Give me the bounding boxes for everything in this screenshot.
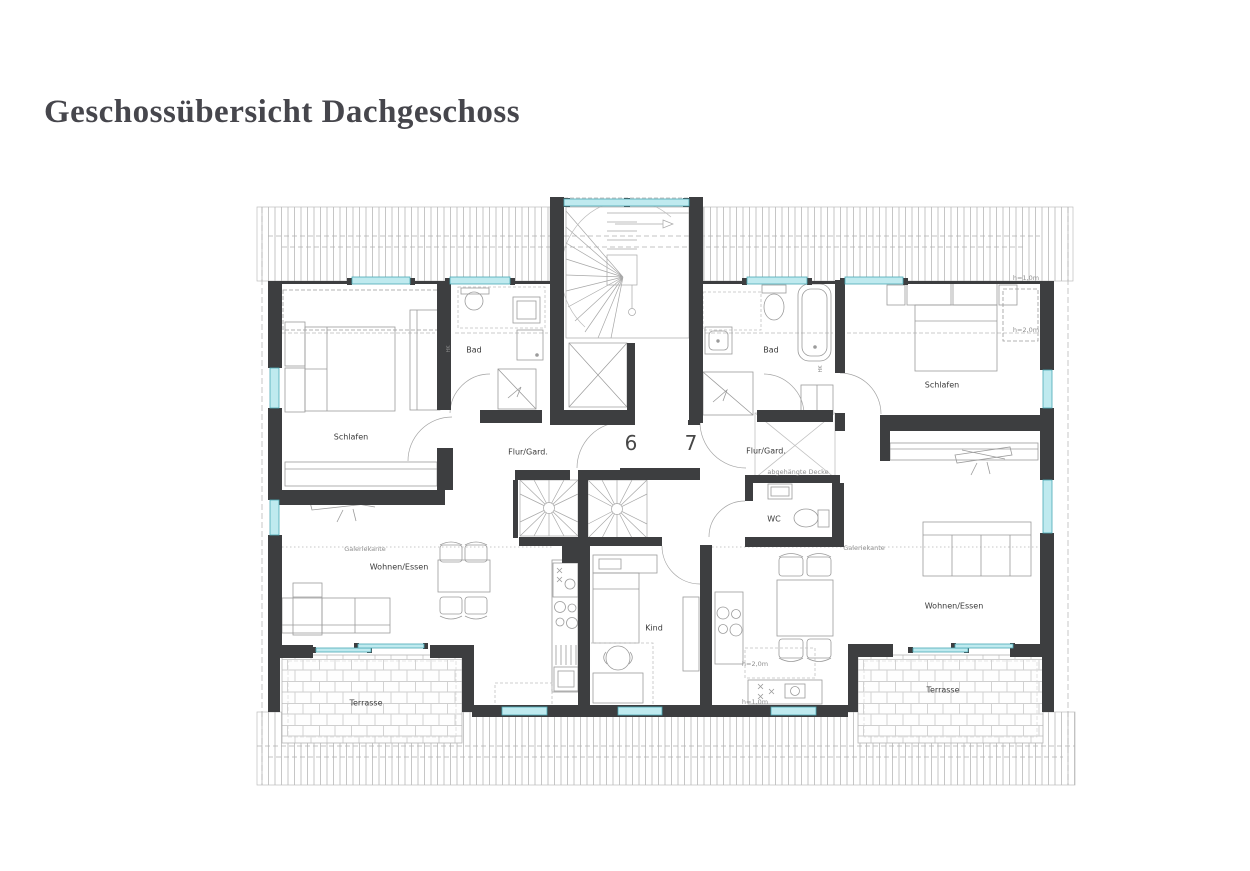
annotation-height-roof-lower: h=2,0m bbox=[1013, 326, 1039, 334]
annotation-height-roof-upper: h=1,0m bbox=[1013, 274, 1039, 282]
room-label-wc-7: WC bbox=[767, 515, 781, 524]
room-label-flur-7: Flur/Gard. bbox=[746, 447, 786, 456]
room-label-schlafen-7: Schlafen bbox=[925, 381, 959, 390]
page: Geschossübersicht Dachgeschoss bbox=[0, 0, 1250, 871]
annotation-height-kitchen: h=2,0m bbox=[742, 660, 768, 668]
annotation-height-window: h=1,0m bbox=[742, 698, 768, 706]
terrace-right bbox=[858, 655, 1043, 743]
room-label-schlafen-6: Schlafen bbox=[334, 433, 368, 442]
page-title: Geschossübersicht Dachgeschoss bbox=[44, 94, 520, 131]
room-label-terrasse-7: Terrasse bbox=[926, 686, 959, 695]
annotation-hk-7: HK bbox=[818, 365, 824, 372]
room-label-flur-6: Flur/Gard. bbox=[508, 448, 548, 457]
room-label-bad-7: Bad bbox=[763, 346, 778, 355]
floor-plan: Schlafen Bad Flur/Gard. Wohnen/Essen Ter… bbox=[255, 197, 1078, 790]
annotation-galerie-6: Galeriekante bbox=[344, 545, 386, 553]
apartment-number-7: 7 bbox=[685, 431, 698, 455]
room-label-wohnen-7: Wohnen/Essen bbox=[925, 602, 984, 611]
apartment-number-6: 6 bbox=[625, 431, 638, 455]
annotation-galerie-7: Galeriekante bbox=[843, 544, 885, 552]
room-label-wohnen-6: Wohnen/Essen bbox=[370, 563, 429, 572]
room-label-bad-6: Bad bbox=[466, 346, 481, 355]
annotation-hk-6: HK bbox=[446, 345, 452, 352]
room-label-terrasse-6: Terrasse bbox=[349, 699, 382, 708]
room-label-kind: Kind bbox=[645, 624, 663, 633]
annotation-abgehaengte-decke: abgehängte Decke bbox=[767, 468, 828, 476]
